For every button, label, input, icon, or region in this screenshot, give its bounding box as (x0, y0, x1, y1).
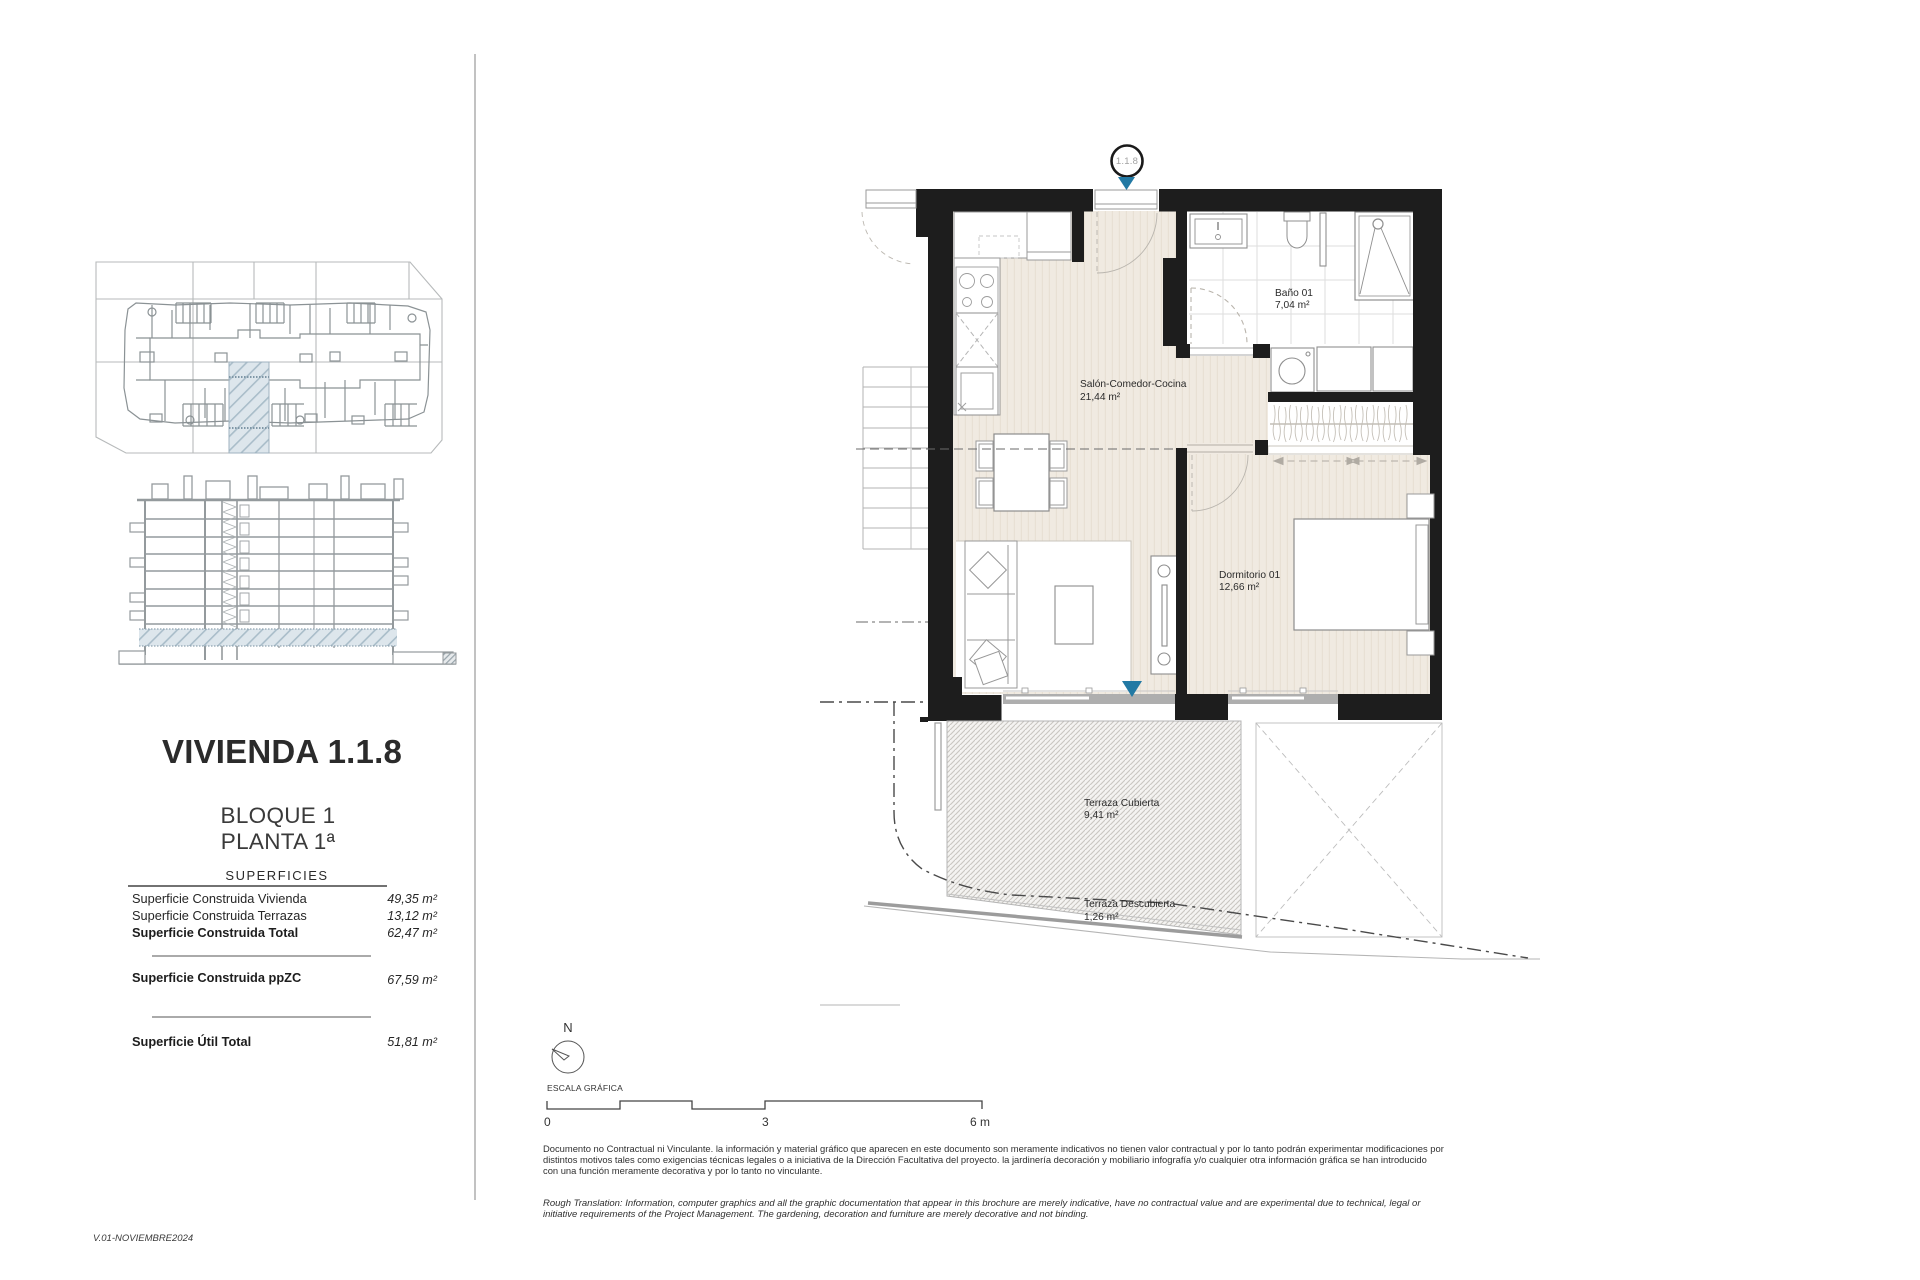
svg-text:con una función meramente deco: con una función meramente decorativa y p… (543, 1165, 822, 1176)
svg-text:62,47 m²: 62,47 m² (387, 926, 438, 940)
svg-text:Terraza Cubierta: Terraza Cubierta (1084, 798, 1160, 809)
svg-text:51,81 m²: 51,81 m² (387, 1035, 438, 1049)
svg-text:Baño 01: Baño 01 (1275, 288, 1313, 299)
svg-text:Superficie Construida Total: Superficie Construida Total (132, 925, 298, 940)
svg-text:1.1.8: 1.1.8 (1116, 156, 1138, 167)
svg-text:1,26 m²: 1,26 m² (1084, 912, 1119, 923)
svg-text:67,59 m²: 67,59 m² (387, 973, 438, 987)
svg-text:Terraza Descubierta: Terraza Descubierta (1084, 899, 1175, 910)
svg-text:Superficie Construida Vivienda: Superficie Construida Vivienda (132, 891, 308, 906)
svg-text:SUPERFICIES: SUPERFICIES (225, 868, 328, 883)
svg-text:ESCALA GRÁFICA: ESCALA GRÁFICA (547, 1083, 623, 1093)
svg-text:Dormitorio 01: Dormitorio 01 (1219, 570, 1280, 581)
svg-text:BLOQUE 1: BLOQUE 1 (221, 803, 336, 828)
svg-text:Superficie Construida ppZC: Superficie Construida ppZC (132, 970, 301, 985)
svg-text:Rough Translation: Information: Rough Translation: Information, computer… (543, 1198, 1421, 1209)
svg-text:Salón-Comedor-Cocina: Salón-Comedor-Cocina (1080, 379, 1187, 390)
svg-text:7,04 m²: 7,04 m² (1275, 300, 1310, 311)
svg-text:3: 3 (762, 1115, 769, 1129)
svg-text:V.01-NOVIEMBRE2024: V.01-NOVIEMBRE2024 (93, 1233, 193, 1244)
svg-text:Documento no Contractual ni Vi: Documento no Contractual ni Vinculante. … (543, 1143, 1444, 1154)
svg-text:Superficie Útil Total: Superficie Útil Total (132, 1034, 251, 1049)
svg-text:21,44 m²: 21,44 m² (1080, 392, 1121, 403)
svg-text:Superficie Construida Terrazas: Superficie Construida Terrazas (132, 908, 307, 923)
svg-text:6 m: 6 m (970, 1115, 990, 1129)
svg-text:9,41 m²: 9,41 m² (1084, 810, 1119, 821)
svg-text:distintos motivos tales como: distintos motivos tales como exigencias … (543, 1154, 1427, 1165)
svg-text:13,12 m²: 13,12 m² (387, 909, 438, 923)
svg-text:initiative requirements of the: initiative requirements of the Project M… (543, 1209, 1089, 1220)
svg-text:PLANTA 1ª: PLANTA 1ª (221, 829, 336, 854)
svg-text:VIVIENDA 1.1.8: VIVIENDA 1.1.8 (162, 733, 402, 770)
svg-text:0: 0 (544, 1115, 551, 1129)
svg-text:12,66 m²: 12,66 m² (1219, 582, 1260, 593)
svg-text:49,35 m²: 49,35 m² (387, 892, 438, 906)
svg-text:N: N (563, 1020, 572, 1035)
